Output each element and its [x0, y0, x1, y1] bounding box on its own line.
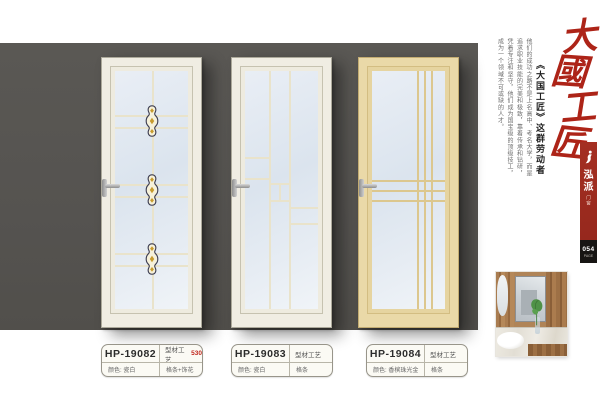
door-handle-lever [362, 184, 377, 188]
door-image-hp-19083 [231, 57, 332, 328]
grid-line [289, 71, 291, 309]
flower-ornament-icon [144, 174, 160, 206]
model-number: HP-19082 [102, 345, 159, 362]
door-image-hp-19082 [101, 57, 202, 328]
page-number: 054 [582, 246, 594, 253]
grid-line [279, 183, 281, 200]
door-glass [372, 71, 445, 309]
brand-name: 泓 派 门窗 [584, 170, 594, 206]
model-label-hp-19084: HP-19084 型材工艺 颜色: 香槟珠光金 格条 [366, 344, 468, 377]
brand-char: 泓 [584, 170, 594, 182]
door-handle-lever [105, 184, 120, 188]
door-glass [115, 71, 188, 309]
grid-line [245, 178, 269, 180]
side-brand-tab: 泓 派 门窗 [580, 142, 597, 240]
door-handle-plate [102, 179, 107, 197]
cabinet-front [528, 344, 567, 356]
grid-line [372, 180, 445, 182]
grid-line [245, 157, 269, 159]
vertical-subtitle: 《大国工匠》这群劳动者 [534, 60, 547, 195]
color-spec: 颜色: 瓷白 [102, 362, 159, 376]
grid-line [372, 190, 445, 192]
model-label-hp-19083: HP-19083 型材工艺 颜色: 瓷白 格条 [231, 344, 333, 377]
model-number: HP-19083 [232, 345, 289, 362]
feature-spec: 格条+饰花 [159, 362, 202, 376]
color-spec: 颜色: 瓷白 [232, 362, 289, 376]
door-sash [367, 66, 450, 314]
door-handle-lever [235, 184, 250, 188]
brand-subtitle: 门窗 [586, 195, 592, 206]
plant-leaf-icon [526, 294, 547, 332]
door-glass [245, 71, 318, 309]
page-number-label: PAGE [584, 254, 593, 258]
door-sash [240, 66, 323, 314]
door-handle-plate [359, 179, 364, 197]
grid-line [269, 71, 271, 309]
color-spec: 颜色: 香槟珠光金 [367, 362, 424, 376]
feature-spec: 格条 [289, 362, 332, 376]
flower-ornament-icon [144, 243, 160, 275]
page-number-box: 054 PAGE [580, 240, 597, 263]
catalog-page: HP-19082 型材工艺 530 颜色: 瓷白 格条+饰花 HP-19083 … [0, 0, 600, 406]
oval-mirror [497, 275, 508, 315]
feature-spec: 格条 [424, 362, 467, 376]
grid-line [289, 207, 318, 209]
bathroom-photo [496, 272, 567, 356]
brand-figure-icon [584, 150, 594, 165]
model-number: HP-19084 [367, 345, 424, 362]
craft-label: 型材工艺 [295, 349, 321, 359]
craft-number: 530 [191, 350, 202, 357]
craft-label: 型材工艺 [430, 349, 456, 359]
grid-line [372, 200, 445, 202]
grid-line [269, 200, 289, 202]
grid-line [289, 223, 318, 225]
brand-char: 派 [584, 182, 594, 194]
craft-spec: 型材工艺 530 [159, 345, 202, 362]
flower-ornament-icon [144, 105, 160, 137]
door-image-hp-19084 [358, 57, 459, 328]
round-sink [497, 332, 524, 349]
craft-spec: 型材工艺 [289, 345, 332, 362]
door-sash [110, 66, 193, 314]
craft-label: 型材工艺 [165, 344, 188, 364]
door-handle-plate [232, 179, 237, 197]
model-label-hp-19082: HP-19082 型材工艺 530 颜色: 瓷白 格条+饰花 [101, 344, 203, 377]
craft-spec: 型材工艺 [424, 345, 467, 362]
vertical-paragraph: 他们的成功之路不是上名高中、考名大学，而是追求职业技能的完美和极致，靠着传承和钻… [485, 38, 532, 178]
